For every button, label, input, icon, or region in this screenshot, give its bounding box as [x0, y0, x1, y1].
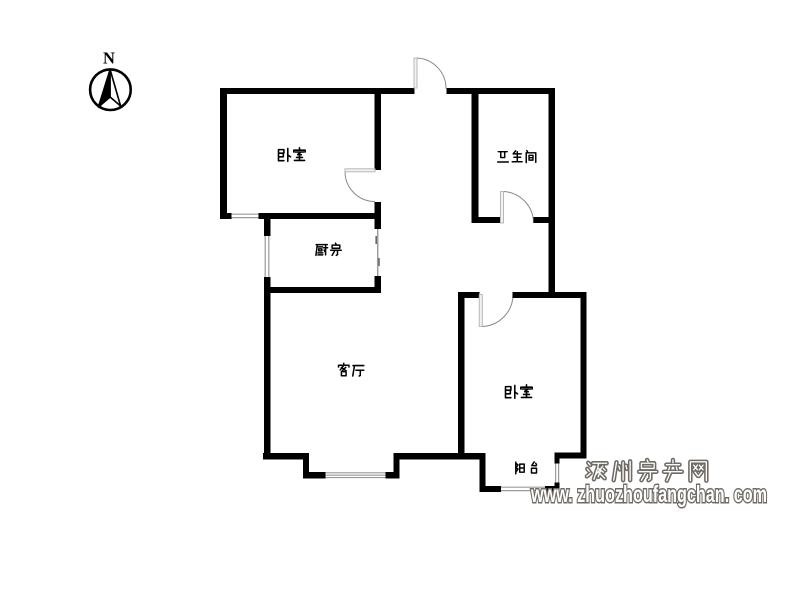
svg-text:www. zhuozhoufangchan. com: www. zhuozhoufangchan. com [530, 481, 767, 507]
svg-text:N: N [103, 49, 115, 68]
